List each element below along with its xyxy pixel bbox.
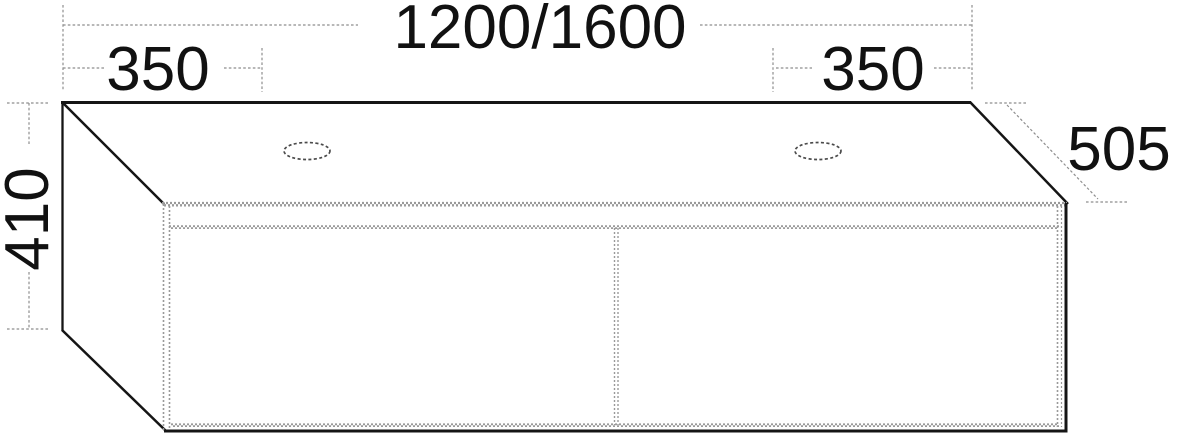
- tap-hole-right: [795, 143, 841, 160]
- dim-label-left-tap-offset: 350: [88, 39, 228, 101]
- dim-label-overall-width: 1200/1600: [370, 0, 710, 59]
- technical-drawing-canvas: 1200/1600 350 350 410 505: [0, 0, 1184, 436]
- dim-label-right-tap-offset: 350: [803, 39, 943, 101]
- cabinet-front-right-edge-dotted: [1058, 206, 1062, 427]
- countertop-front-edge-hatch: [162, 203, 1067, 205]
- dim-label-height: 410: [0, 149, 59, 289]
- drawer-divider-dotted: [615, 228, 619, 425]
- dim-label-depth: 505: [1049, 119, 1184, 181]
- cabinet-body: [62, 102, 1067, 433]
- countertop-left-edge: [62, 102, 164, 204]
- drawer-top-edge-hatch: [169, 226, 1059, 228]
- tap-hole-left: [284, 143, 330, 160]
- countertop: [61, 102, 1068, 205]
- cabinet-front-left-edge-dotted: [164, 204, 170, 430]
- cabinet-left-bottom-edge: [62, 330, 166, 431]
- drawer-fronts: [169, 226, 1059, 426]
